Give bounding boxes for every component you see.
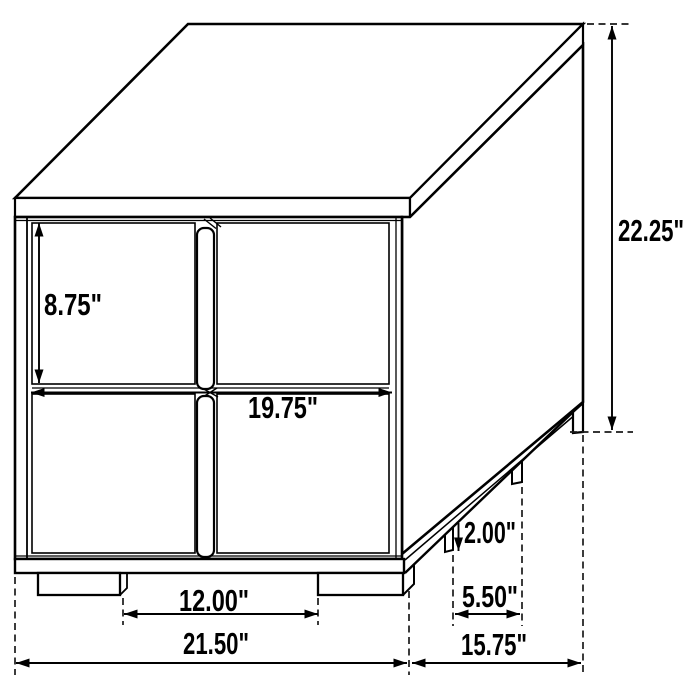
dim-label-overall-depth: 15.75" — [461, 627, 527, 662]
dim-label-drawer-width: 19.75" — [248, 390, 318, 425]
drawer-panel-bottom-left — [32, 394, 195, 553]
diagram-canvas: 22.25" 8.75" 19.75" 12.00" 21.50" — [0, 0, 700, 700]
dimension-front-leg-spacing: 12.00" — [123, 583, 318, 625]
drawer-panel-top-right — [217, 223, 389, 384]
dim-label-overall-height: 22.25" — [618, 213, 684, 248]
dim-label-overall-width: 21.50" — [183, 626, 249, 661]
dim-label-front-leg-spacing: 12.00" — [179, 583, 249, 618]
front-leg-left — [38, 573, 120, 595]
dim-label-leg-height: 2.00" — [464, 515, 516, 550]
top-front-edge — [15, 198, 410, 217]
dim-label-side-leg-spacing: 5.50" — [462, 579, 518, 614]
dim-label-drawer-height: 8.75" — [44, 287, 102, 322]
dimension-side-leg-spacing: 5.50" — [453, 487, 522, 626]
drawer-pull-lower — [197, 396, 214, 557]
dimension-overall-height: 22.25" — [570, 24, 684, 432]
drawer-pull-upper — [197, 228, 214, 389]
nightstand-dimension-diagram: 22.25" 8.75" 19.75" 12.00" 21.50" — [0, 0, 700, 700]
dimension-leg-height: 2.00" — [459, 515, 517, 551]
front-leg-right — [318, 573, 403, 595]
front-bottom-rail — [15, 559, 404, 573]
